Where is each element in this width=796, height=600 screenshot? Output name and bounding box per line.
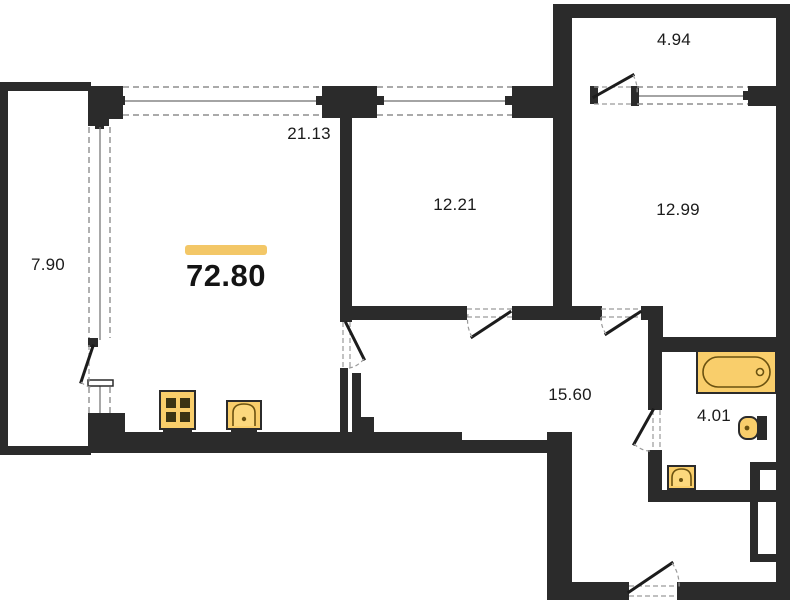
- window-glyph: [88, 127, 110, 347]
- door-swing-glyph: [467, 309, 512, 337]
- door-swing-glyph: [601, 309, 641, 334]
- kitchen-sink-icon: [227, 401, 261, 429]
- window-glyph: [377, 87, 512, 115]
- area-label-room-a: 12.21: [433, 195, 477, 215]
- floor-plan-drawing: [0, 0, 796, 600]
- stove-icon: [160, 391, 195, 429]
- area-label-room-b: 12.99: [656, 200, 700, 220]
- door-swing-glyph: [634, 410, 660, 451]
- total-area-value: 72.80: [185, 258, 267, 294]
- window-glyph: [637, 87, 750, 104]
- door-swing-glyph: [594, 75, 637, 104]
- window-glyph: [117, 87, 323, 115]
- wall-recess: [462, 432, 547, 440]
- bathtub-icon: [697, 351, 776, 393]
- floor-plan: 7.90 21.13 12.21 12.99 4.94 15.60 4.01 7…: [0, 0, 796, 600]
- area-label-hallway: 15.60: [548, 385, 592, 405]
- accent-bar: [185, 245, 267, 255]
- area-label-balcony-left: 7.90: [31, 255, 65, 275]
- total-area: 72.80: [185, 245, 267, 294]
- area-label-living-kitchen: 21.13: [287, 124, 331, 144]
- window-glyph: [88, 380, 113, 413]
- toilet-icon: [739, 416, 767, 440]
- door-swing-glyph: [629, 563, 679, 596]
- doors: [81, 75, 679, 596]
- door-swing-glyph: [343, 322, 364, 368]
- walls: [0, 4, 790, 600]
- fixtures: [160, 351, 776, 489]
- washbasin-icon: [668, 466, 695, 489]
- area-label-bathroom: 4.01: [697, 406, 731, 426]
- area-label-balcony-top: 4.94: [657, 30, 691, 50]
